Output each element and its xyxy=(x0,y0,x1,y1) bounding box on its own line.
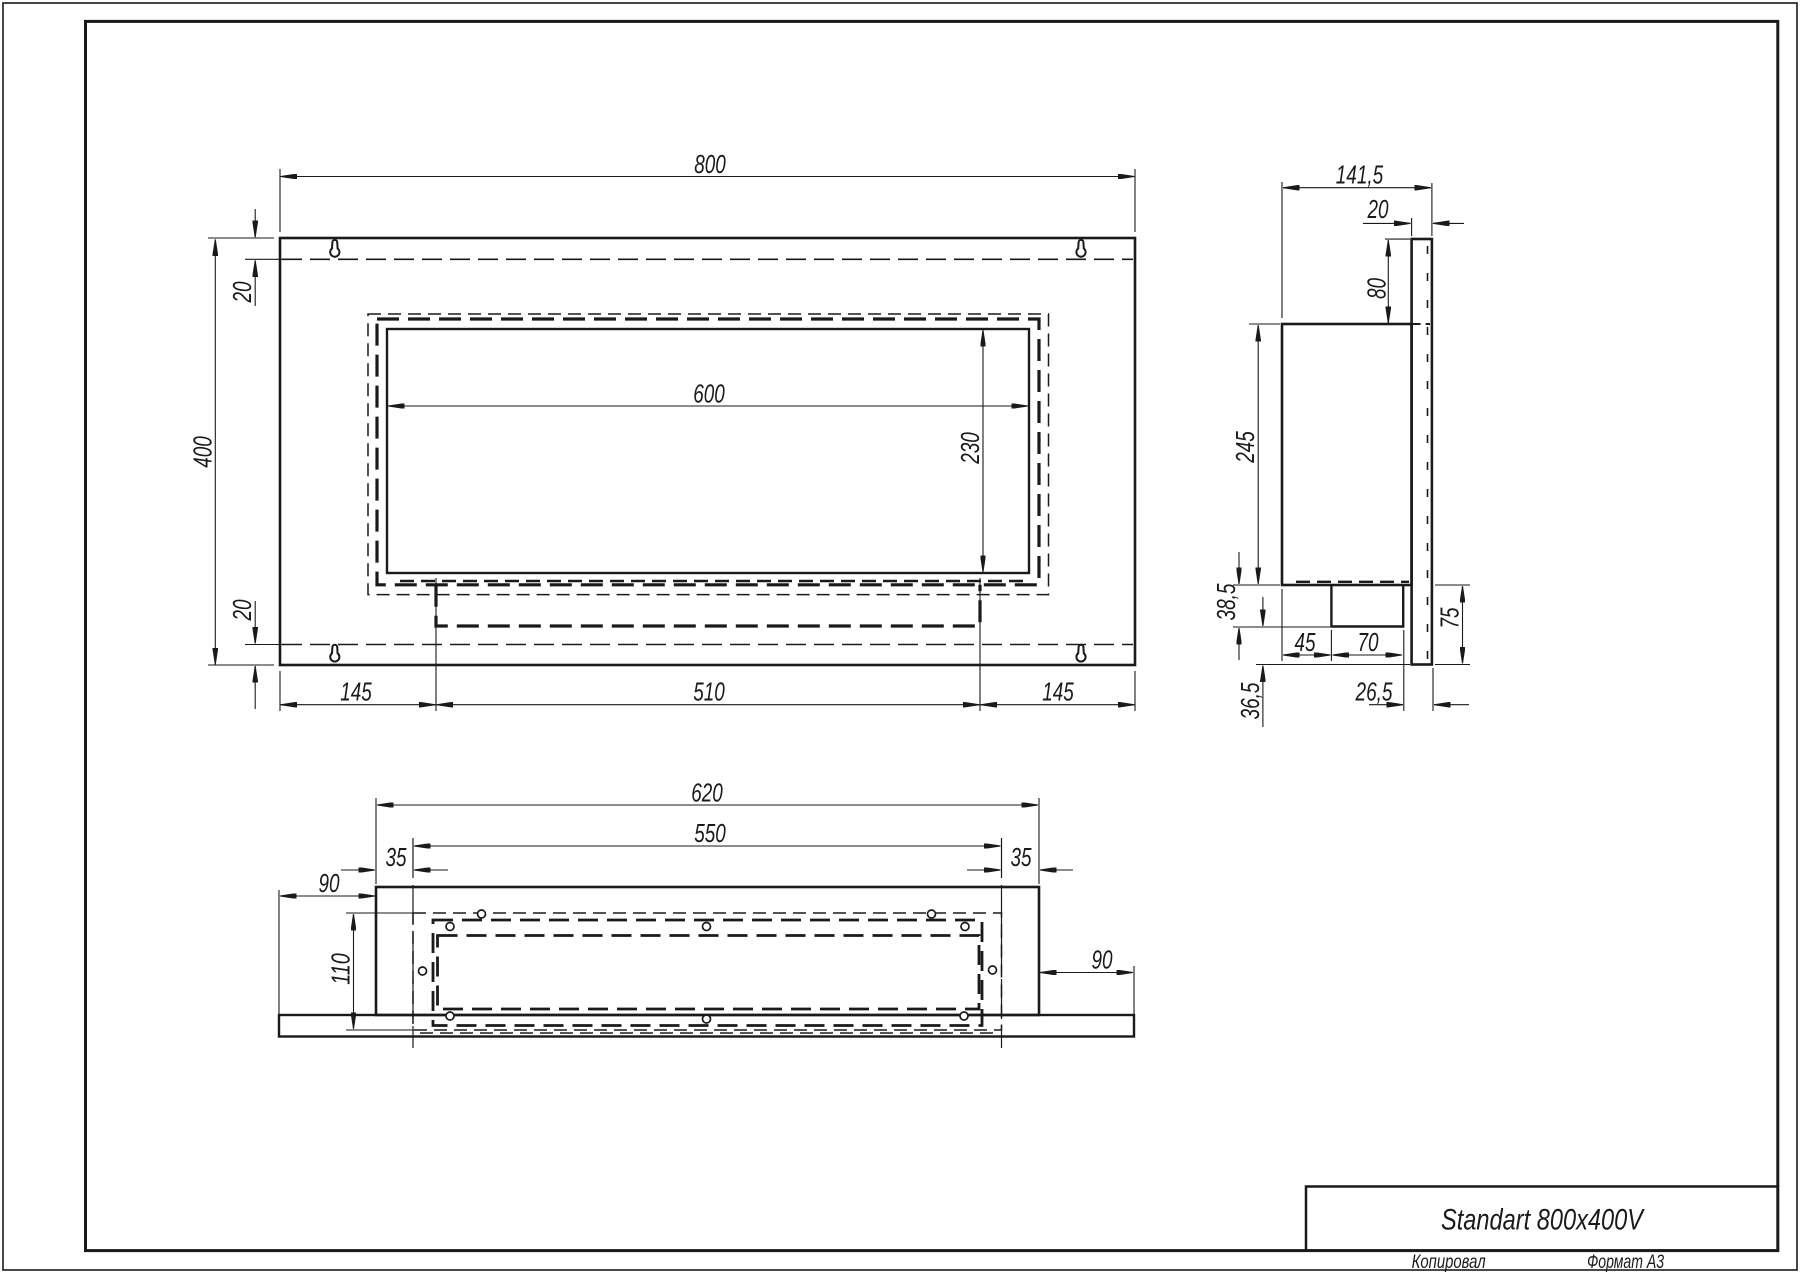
svg-text:45: 45 xyxy=(1295,627,1316,657)
svg-text:Standart 800x400V: Standart 800x400V xyxy=(1441,1204,1645,1237)
svg-text:38,5: 38,5 xyxy=(1211,583,1241,620)
svg-text:36,5: 36,5 xyxy=(1235,682,1265,719)
svg-text:20: 20 xyxy=(227,281,257,303)
svg-text:141,5: 141,5 xyxy=(1336,160,1384,190)
svg-text:90: 90 xyxy=(319,868,340,898)
svg-text:800: 800 xyxy=(694,149,726,179)
svg-text:600: 600 xyxy=(693,379,725,409)
svg-text:Формат А3: Формат А3 xyxy=(1587,1252,1664,1273)
svg-text:145: 145 xyxy=(340,677,372,707)
svg-text:Копировал: Копировал xyxy=(1412,1252,1486,1273)
svg-text:35: 35 xyxy=(1011,842,1032,872)
svg-text:620: 620 xyxy=(691,778,723,808)
svg-text:75: 75 xyxy=(1435,607,1465,628)
svg-text:110: 110 xyxy=(326,953,356,985)
svg-text:70: 70 xyxy=(1358,627,1379,657)
svg-text:510: 510 xyxy=(693,677,725,707)
svg-text:550: 550 xyxy=(694,818,726,848)
svg-text:245: 245 xyxy=(1230,431,1260,464)
svg-text:400: 400 xyxy=(188,436,218,468)
svg-text:35: 35 xyxy=(386,842,407,872)
svg-text:26,5: 26,5 xyxy=(1355,677,1393,707)
svg-text:90: 90 xyxy=(1092,945,1113,975)
svg-text:145: 145 xyxy=(1042,677,1074,707)
svg-text:230: 230 xyxy=(955,432,985,465)
svg-text:20: 20 xyxy=(1367,194,1389,224)
svg-text:20: 20 xyxy=(227,599,257,621)
svg-text:80: 80 xyxy=(1362,278,1392,299)
